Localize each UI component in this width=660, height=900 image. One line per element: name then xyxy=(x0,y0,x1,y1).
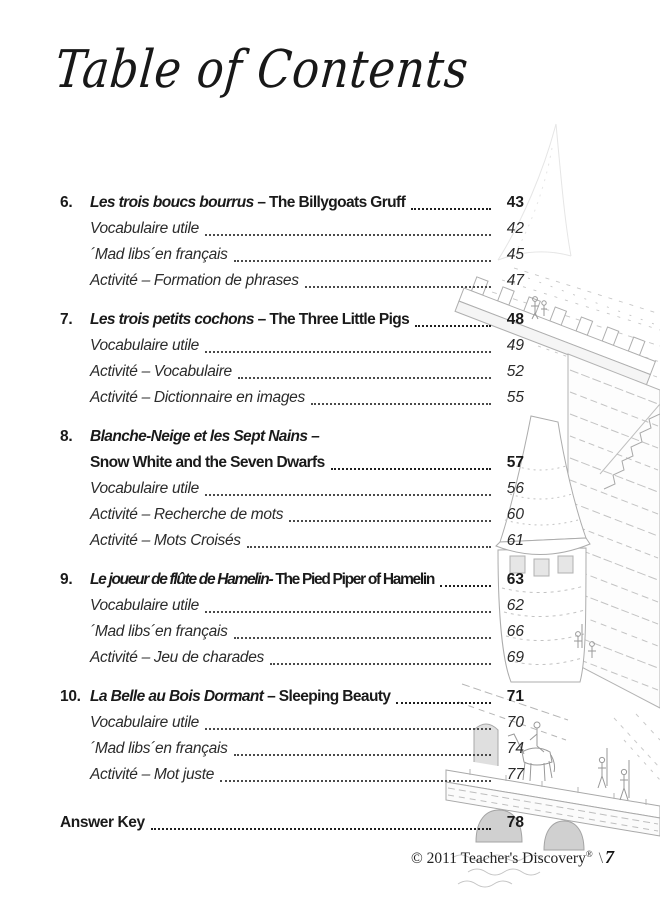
entry-number: 7. xyxy=(60,307,90,333)
entry-title-french: La Belle au Bois Dormant xyxy=(90,688,263,705)
slope-hatching xyxy=(614,714,660,780)
toc-subitem: Activité – Recherche de mots 60 xyxy=(60,502,524,528)
dot-leader xyxy=(205,494,491,496)
subitem-label: Vocabulaire utile xyxy=(90,593,199,619)
toc-section-6: 6. Les trois boucs bourrus – The Billygo… xyxy=(60,190,524,294)
toc-subitem: Vocabulaire utile 56 xyxy=(60,476,524,502)
page-number: 56 xyxy=(496,476,524,502)
dot-leader xyxy=(415,325,491,327)
dot-leader xyxy=(270,663,491,665)
toc-entry: 7. Les trois petits cochons – The Three … xyxy=(60,307,524,333)
entry-title-french: Le joueur de flûte de Hamelin- xyxy=(90,571,272,588)
page-number: 77 xyxy=(496,762,524,788)
page-number: 63 xyxy=(496,567,524,593)
footer-separator: \ xyxy=(599,850,603,867)
toc-subitem: Activité – Mot juste 77 xyxy=(60,762,524,788)
answer-key-label: Answer Key xyxy=(60,810,145,836)
copyright-text: © 2011 Teacher's Discovery xyxy=(411,850,586,867)
page-number: 43 xyxy=(496,190,524,216)
table-of-contents: 6. Les trois boucs bourrus – The Billygo… xyxy=(60,190,524,836)
toc-subitem: ´Mad libs´en français 66 xyxy=(60,619,524,645)
dot-leader xyxy=(220,780,491,782)
subitem-label: ´Mad libs´en français xyxy=(90,242,228,268)
toc-section-7: 7. Les trois petits cochons – The Three … xyxy=(60,307,524,411)
toc-subitem: ´Mad libs´en français 74 xyxy=(60,736,524,762)
entry-title: Les trois petits cochons – The Three Lit… xyxy=(90,307,409,333)
toc-subitem: Activité – Vocabulaire 52 xyxy=(60,359,524,385)
dot-leader xyxy=(234,637,491,639)
entry-title: La Belle au Bois Dormant – Sleeping Beau… xyxy=(90,684,390,710)
page-number: 57 xyxy=(496,450,524,476)
toc-subitem: Activité – Formation de phrases 47 xyxy=(60,268,524,294)
page-number: 69 xyxy=(496,645,524,671)
page-number: 61 xyxy=(496,528,524,554)
dot-leader xyxy=(440,585,491,587)
dot-leader xyxy=(411,208,491,210)
subitem-label: Activité – Mot juste xyxy=(90,762,214,788)
subitem-label: Activité – Dictionnaire en images xyxy=(90,385,305,411)
subitem-label: Vocabulaire utile xyxy=(90,216,199,242)
dot-leader xyxy=(396,702,491,704)
entry-title-french: Les trois boucs bourrus xyxy=(90,194,254,211)
dot-leader xyxy=(305,286,491,288)
dot-leader xyxy=(205,611,491,613)
dot-leader xyxy=(234,754,491,756)
subitem-label: Activité – Formation de phrases xyxy=(90,268,299,294)
entry-title-english: – The Billygoats Gruff xyxy=(254,194,406,211)
dot-leader xyxy=(234,260,491,262)
toc-entry-line1: 8. Blanche-Neige et les Sept Nains – xyxy=(60,424,524,450)
subitem-label: Vocabulaire utile xyxy=(90,333,199,359)
page-number: 62 xyxy=(496,593,524,619)
dot-leader xyxy=(289,520,491,522)
dot-leader xyxy=(151,828,491,830)
toc-entry: 9. Le joueur de flûte de Hamelin- The Pi… xyxy=(60,567,524,593)
subitem-label: Activité – Jeu de charades xyxy=(90,645,264,671)
entry-title: Snow White and the Seven Dwarfs xyxy=(90,450,325,476)
page-number: 47 xyxy=(496,268,524,294)
page-number: 71 xyxy=(496,684,524,710)
dot-leader xyxy=(247,546,491,548)
page-number: 74 xyxy=(496,736,524,762)
subitem-label: ´Mad libs´en français xyxy=(90,736,228,762)
page-number: 45 xyxy=(496,242,524,268)
entry-title-english: – Sleeping Beauty xyxy=(263,688,390,705)
entry-title-english: The Pied Piper of Hamelin xyxy=(272,571,434,588)
page-footer: © 2011 Teacher's Discovery®\7 xyxy=(411,847,614,868)
answer-key-entry: Answer Key 78 xyxy=(60,810,524,836)
dot-leader xyxy=(238,377,491,379)
toc-subitem: Vocabulaire utile 42 xyxy=(60,216,524,242)
toc-subitem: Vocabulaire utile 70 xyxy=(60,710,524,736)
dot-leader xyxy=(311,403,491,405)
page-number: 70 xyxy=(496,710,524,736)
entry-title-french: Les trois petits cochons xyxy=(90,311,254,328)
dot-leader xyxy=(331,468,491,470)
toc-subitem: Activité – Mots Croisés 61 xyxy=(60,528,524,554)
entry-title: Blanche-Neige et les Sept Nains – xyxy=(90,424,319,450)
page-number: 42 xyxy=(496,216,524,242)
toc-subitem: Vocabulaire utile 49 xyxy=(60,333,524,359)
page-title: Table of Contents xyxy=(53,40,471,100)
page-number: 66 xyxy=(496,619,524,645)
entry-number: 6. xyxy=(60,190,90,216)
soldier-figures xyxy=(598,748,629,800)
subitem-label: Activité – Recherche de mots xyxy=(90,502,283,528)
subitem-label: Activité – Mots Croisés xyxy=(90,528,241,554)
toc-entry-line2: Snow White and the Seven Dwarfs 57 xyxy=(60,450,524,476)
toc-entry: 6. Les trois boucs bourrus – The Billygo… xyxy=(60,190,524,216)
subitem-label: Vocabulaire utile xyxy=(90,476,199,502)
entry-title: Les trois boucs bourrus – The Billygoats… xyxy=(90,190,405,216)
subitem-label: ´Mad libs´en français xyxy=(90,619,228,645)
folio-page-number: 7 xyxy=(605,847,614,867)
toc-section-8: 8. Blanche-Neige et les Sept Nains – Sno… xyxy=(60,424,524,554)
subitem-label: Activité – Vocabulaire xyxy=(90,359,232,385)
subitem-label: Vocabulaire utile xyxy=(90,710,199,736)
toc-subitem: Vocabulaire utile 62 xyxy=(60,593,524,619)
page-number: 49 xyxy=(496,333,524,359)
entry-title: Le joueur de flûte de Hamelin- The Pied … xyxy=(90,567,434,593)
entry-title-french: Blanche-Neige et les Sept Nains – xyxy=(90,428,319,445)
entry-number: 8. xyxy=(60,424,90,450)
toc-section-9: 9. Le joueur de flûte de Hamelin- The Pi… xyxy=(60,567,524,671)
entry-title-english: Snow White and the Seven Dwarfs xyxy=(90,454,325,471)
entry-number: 9. xyxy=(60,567,90,593)
entry-title-english: – The Three Little Pigs xyxy=(254,311,409,328)
entry-number: 10. xyxy=(60,684,90,710)
toc-subitem: ´Mad libs´en français 45 xyxy=(60,242,524,268)
toc-entry: 10. La Belle au Bois Dormant – Sleeping … xyxy=(60,684,524,710)
toc-subitem: Activité – Jeu de charades 69 xyxy=(60,645,524,671)
toc-subitem: Activité – Dictionnaire en images 55 xyxy=(60,385,524,411)
page-number: 60 xyxy=(496,502,524,528)
dot-leader xyxy=(205,728,491,730)
page-number: 48 xyxy=(496,307,524,333)
toc-section-10: 10. La Belle au Bois Dormant – Sleeping … xyxy=(60,684,524,788)
registered-mark: ® xyxy=(586,849,593,859)
page-number: 78 xyxy=(496,810,524,836)
dot-leader xyxy=(205,351,491,353)
dot-leader xyxy=(205,234,491,236)
page-number: 52 xyxy=(496,359,524,385)
page-number: 55 xyxy=(496,385,524,411)
